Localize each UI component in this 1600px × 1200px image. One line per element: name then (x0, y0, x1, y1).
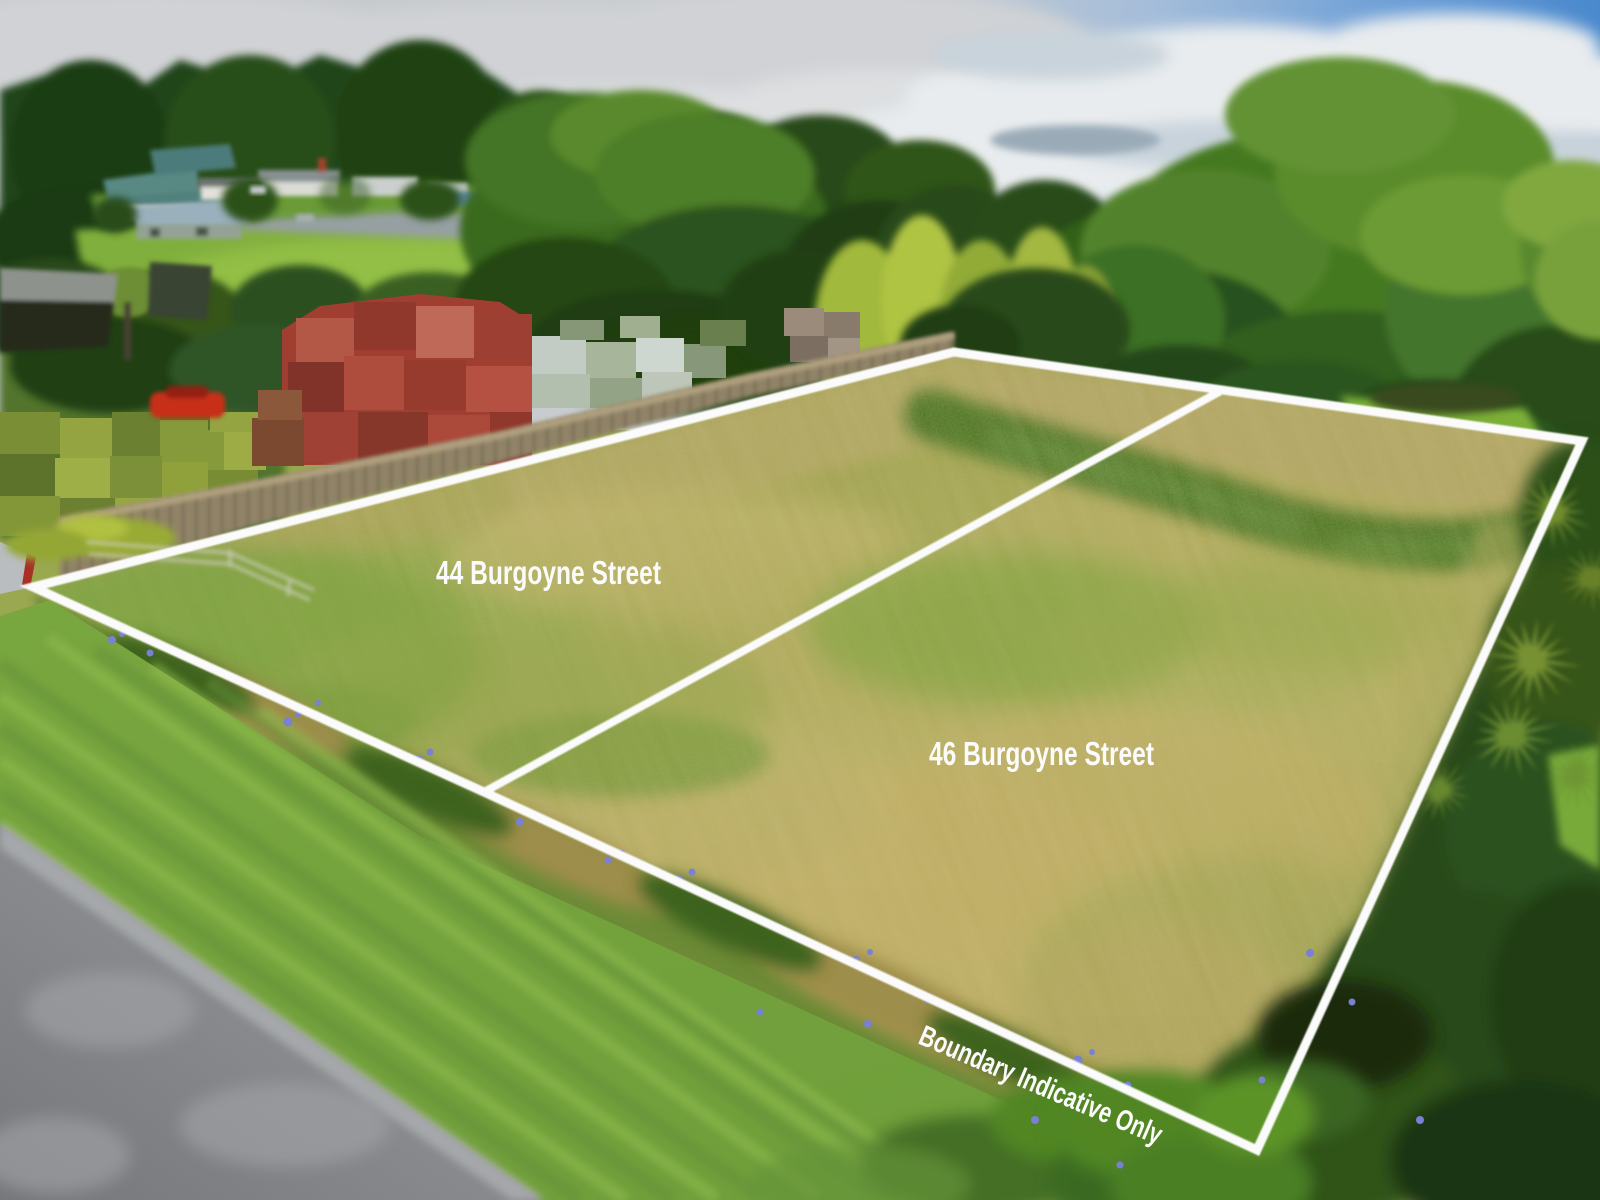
svg-text:44 Burgoyne Street: 44 Burgoyne Street (436, 554, 661, 591)
svg-text:46 Burgoyne Street: 46 Burgoyne Street (929, 735, 1154, 772)
